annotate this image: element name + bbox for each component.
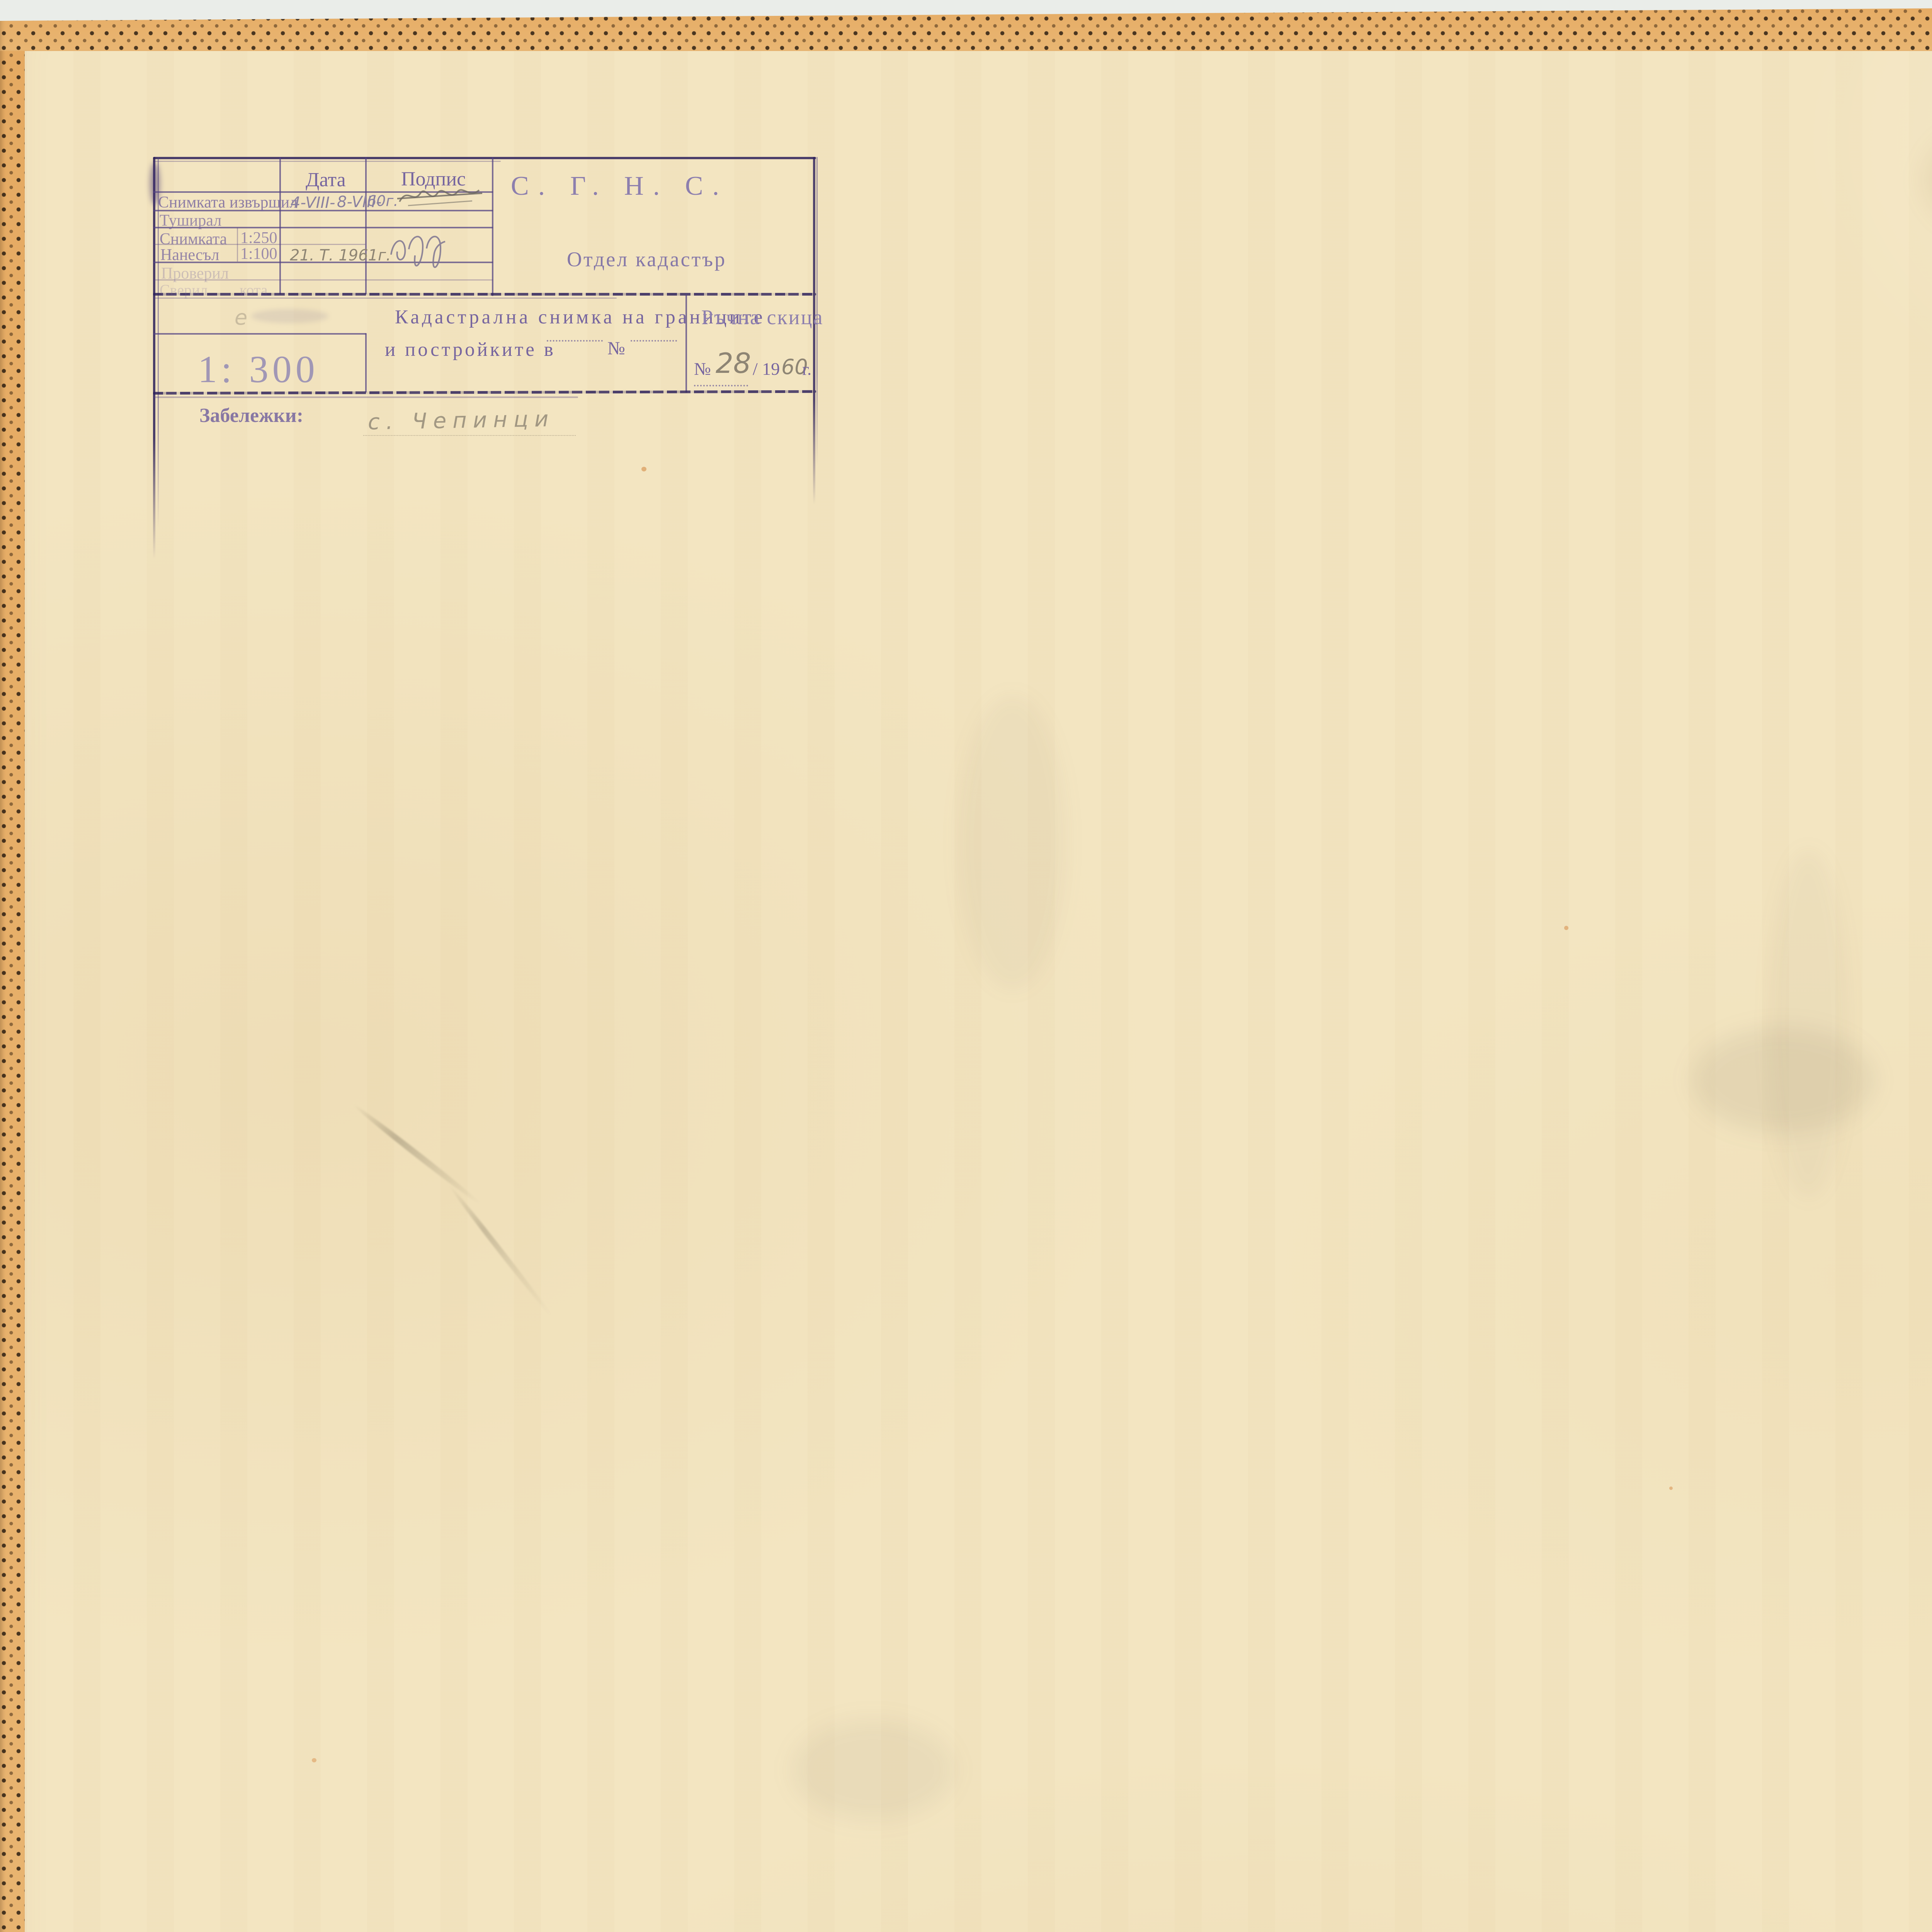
survey-date-year: 60г. (367, 192, 398, 209)
decorative-mark (641, 467, 646, 471)
decorative-mark (153, 157, 816, 159)
scale-value: 1: 300 (198, 347, 319, 391)
decorative-mark (631, 340, 677, 342)
row-label-survey-by: Снимката извършил (158, 193, 298, 212)
decorative-mark (312, 1758, 316, 1762)
decorative-mark (1692, 1028, 1874, 1132)
notes-label: Забележки: (199, 404, 303, 427)
decorative-mark (365, 333, 367, 393)
sketch-no-suffix: г. (802, 359, 811, 379)
border-band-left (0, 0, 25, 1932)
row-label-plotted: Нанесъл (160, 246, 219, 264)
column-header-date: Дата (306, 168, 346, 191)
org-department: Отдел кадастър (567, 247, 726, 271)
decorative-mark (153, 396, 578, 398)
decorative-mark (1770, 850, 1847, 1198)
sketch-no-value: 28 (716, 347, 751, 379)
row-label-checked: Проверил (161, 264, 229, 283)
decorative-mark (153, 333, 366, 335)
decorative-mark (251, 309, 328, 323)
row-label-inked: Туширал (160, 211, 221, 230)
decorative-mark (352, 1102, 483, 1207)
notes-value: с. Чепинци (367, 406, 554, 435)
decorative-mark (365, 157, 367, 294)
sketch-no-prefix: № (694, 359, 711, 379)
decorative-mark (547, 340, 603, 342)
map-title-line2: и постройките в (385, 338, 556, 361)
signature-surveyor (396, 182, 485, 213)
decorative-mark (694, 385, 748, 386)
decorative-mark (958, 696, 1066, 989)
decorative-mark (1669, 1486, 1673, 1490)
signature-plotter (386, 226, 456, 280)
faint-pencil-mark: е (235, 305, 247, 330)
row-label-compared-2: кота (240, 281, 268, 299)
decorative-mark (792, 1719, 954, 1820)
plot-scale-value: 1:100 (240, 245, 277, 263)
decorative-mark (1924, 116, 1932, 243)
map-title-no-sign: № (607, 338, 625, 359)
decorative-mark (492, 157, 493, 296)
sketch-no-sep: / 19 (753, 359, 780, 379)
survey-date-1: 4-VIII- (291, 194, 335, 212)
decorative-mark (158, 157, 159, 528)
decorative-mark (447, 1184, 554, 1318)
plotted-date: 21. Т. 1961г. (290, 247, 391, 264)
decorative-mark (153, 161, 501, 162)
decorative-mark (279, 157, 281, 294)
decorative-mark (153, 298, 617, 299)
paper-sheet: Дата Подпис Снимката извършил 4-VIII- 8-… (0, 0, 1932, 1932)
decorative-mark (153, 157, 155, 559)
decorative-mark (1564, 926, 1568, 930)
decorative-mark (813, 157, 815, 505)
row-label-compared: Сверил (160, 281, 207, 299)
org-title: С. Г. Н. С. (511, 171, 728, 202)
decorative-mark (363, 435, 576, 436)
hand-sketch-label: Ръчна скица (701, 305, 823, 329)
